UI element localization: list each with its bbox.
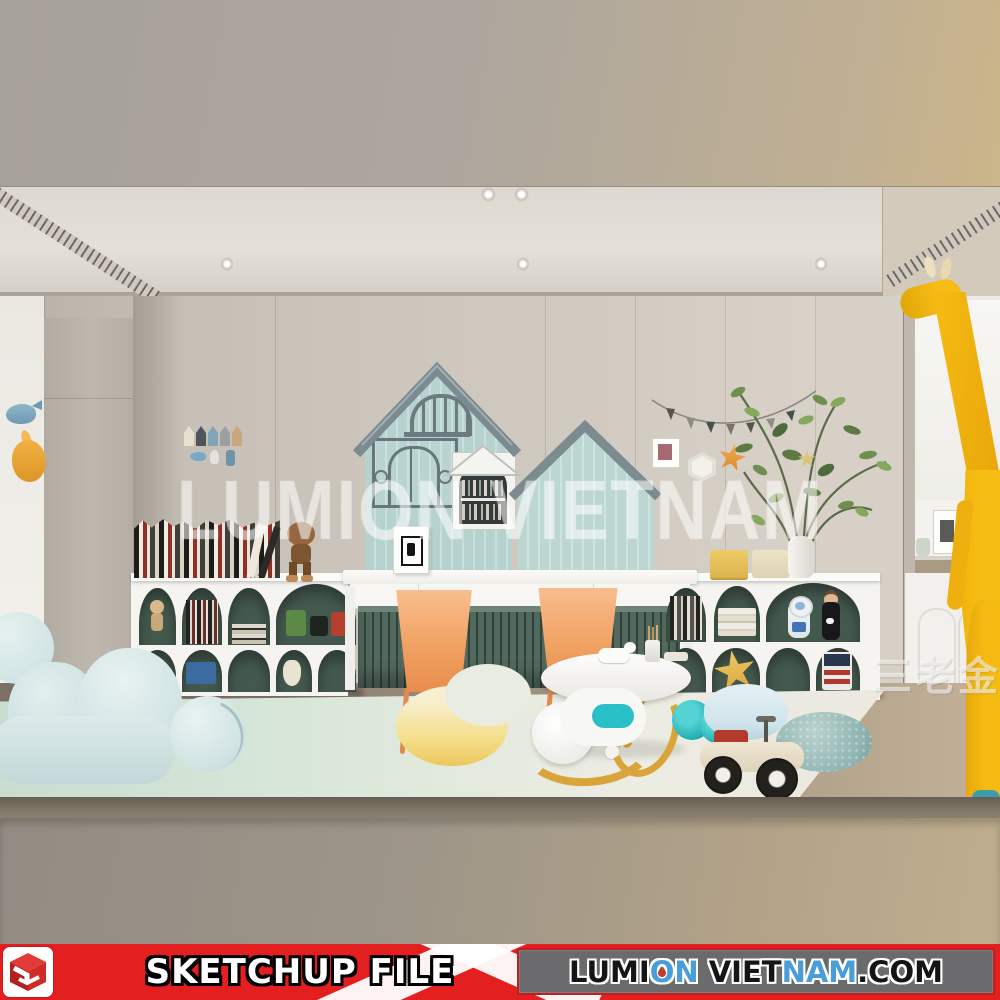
roof-trim-large	[360, 369, 514, 450]
kaws-figure-boot	[286, 575, 298, 582]
black-figure-hands	[826, 618, 834, 624]
toy-cube-green	[286, 610, 306, 636]
screenshot-root: LUMION VIETNAM 三老金 SKETCHUP FILE LUMION …	[0, 0, 1000, 1000]
folded-cloth	[718, 608, 756, 636]
table-tray	[664, 652, 688, 661]
roof-highlight	[362, 366, 512, 445]
storage-box-cream	[752, 550, 790, 578]
books	[186, 600, 218, 644]
mini-house	[196, 426, 206, 446]
site-url-segment: NAM	[782, 955, 858, 989]
kaws-figure-body	[291, 544, 311, 564]
site-url-panel: LUMION VIETNAM.COM	[517, 948, 995, 995]
toy-cube-dark	[310, 616, 328, 636]
flag-box-stripe	[824, 670, 850, 675]
toy-car-wheel	[756, 758, 798, 800]
astronaut-visor	[795, 602, 805, 610]
mini-house	[208, 426, 218, 446]
toy-car-wheel	[704, 756, 742, 794]
front-ledge	[0, 797, 1000, 819]
foreground-blur-band	[0, 818, 1000, 944]
polar-bear-head	[624, 642, 636, 653]
plant-leaves	[729, 385, 893, 528]
storage-box-blue	[186, 662, 216, 684]
sketchup-logo-icon	[3, 947, 53, 997]
giraffe-leg-drape	[966, 600, 1000, 796]
crescent-pouf-cutout	[445, 664, 531, 726]
whale-hook	[6, 404, 36, 424]
rabbit-hook	[12, 440, 46, 482]
toy-doll-body	[151, 613, 163, 631]
roof-trim-small	[515, 426, 655, 494]
kaws-figure-head	[287, 522, 315, 546]
flag-box-canton	[824, 654, 850, 666]
flag-box-stripe	[824, 679, 850, 684]
book-stack	[232, 624, 266, 644]
astronaut-chest	[792, 622, 806, 632]
whale-ornament	[190, 452, 206, 461]
storage-box-yellow	[710, 550, 748, 580]
toy-car-steering-pole	[764, 720, 768, 744]
toy-doll-head	[150, 600, 164, 614]
mini-house	[184, 426, 194, 446]
mini-house	[232, 426, 242, 446]
bird-ornament	[210, 450, 219, 464]
desk-photo-frame-glyph	[407, 543, 415, 556]
site-url-segment: .COM	[857, 955, 943, 989]
site-url-segment: O	[650, 955, 675, 989]
site-url-segment: LUMI	[569, 955, 650, 989]
mini-house-hooks	[184, 426, 248, 450]
site-url-segment: N	[674, 955, 698, 989]
site-url-segment: VIET	[699, 955, 782, 989]
foam-lounger-base	[0, 716, 176, 784]
photo-frame-small-image	[658, 444, 672, 460]
kaws-figure-boot	[301, 575, 313, 582]
footer-banner: SKETCHUP FILE LUMION VIETNAM.COM	[0, 944, 1000, 1000]
site-url-label: LUMION VIETNAM.COM	[569, 955, 943, 989]
vase-small	[283, 660, 301, 686]
sketchup-file-label: SKETCHUP FILE	[130, 951, 470, 993]
plant-vase	[788, 536, 814, 578]
pencil-cup	[645, 640, 660, 662]
books	[670, 596, 702, 640]
mini-house	[220, 426, 230, 446]
anchor-ornament	[226, 450, 235, 466]
desk-side	[345, 586, 355, 690]
